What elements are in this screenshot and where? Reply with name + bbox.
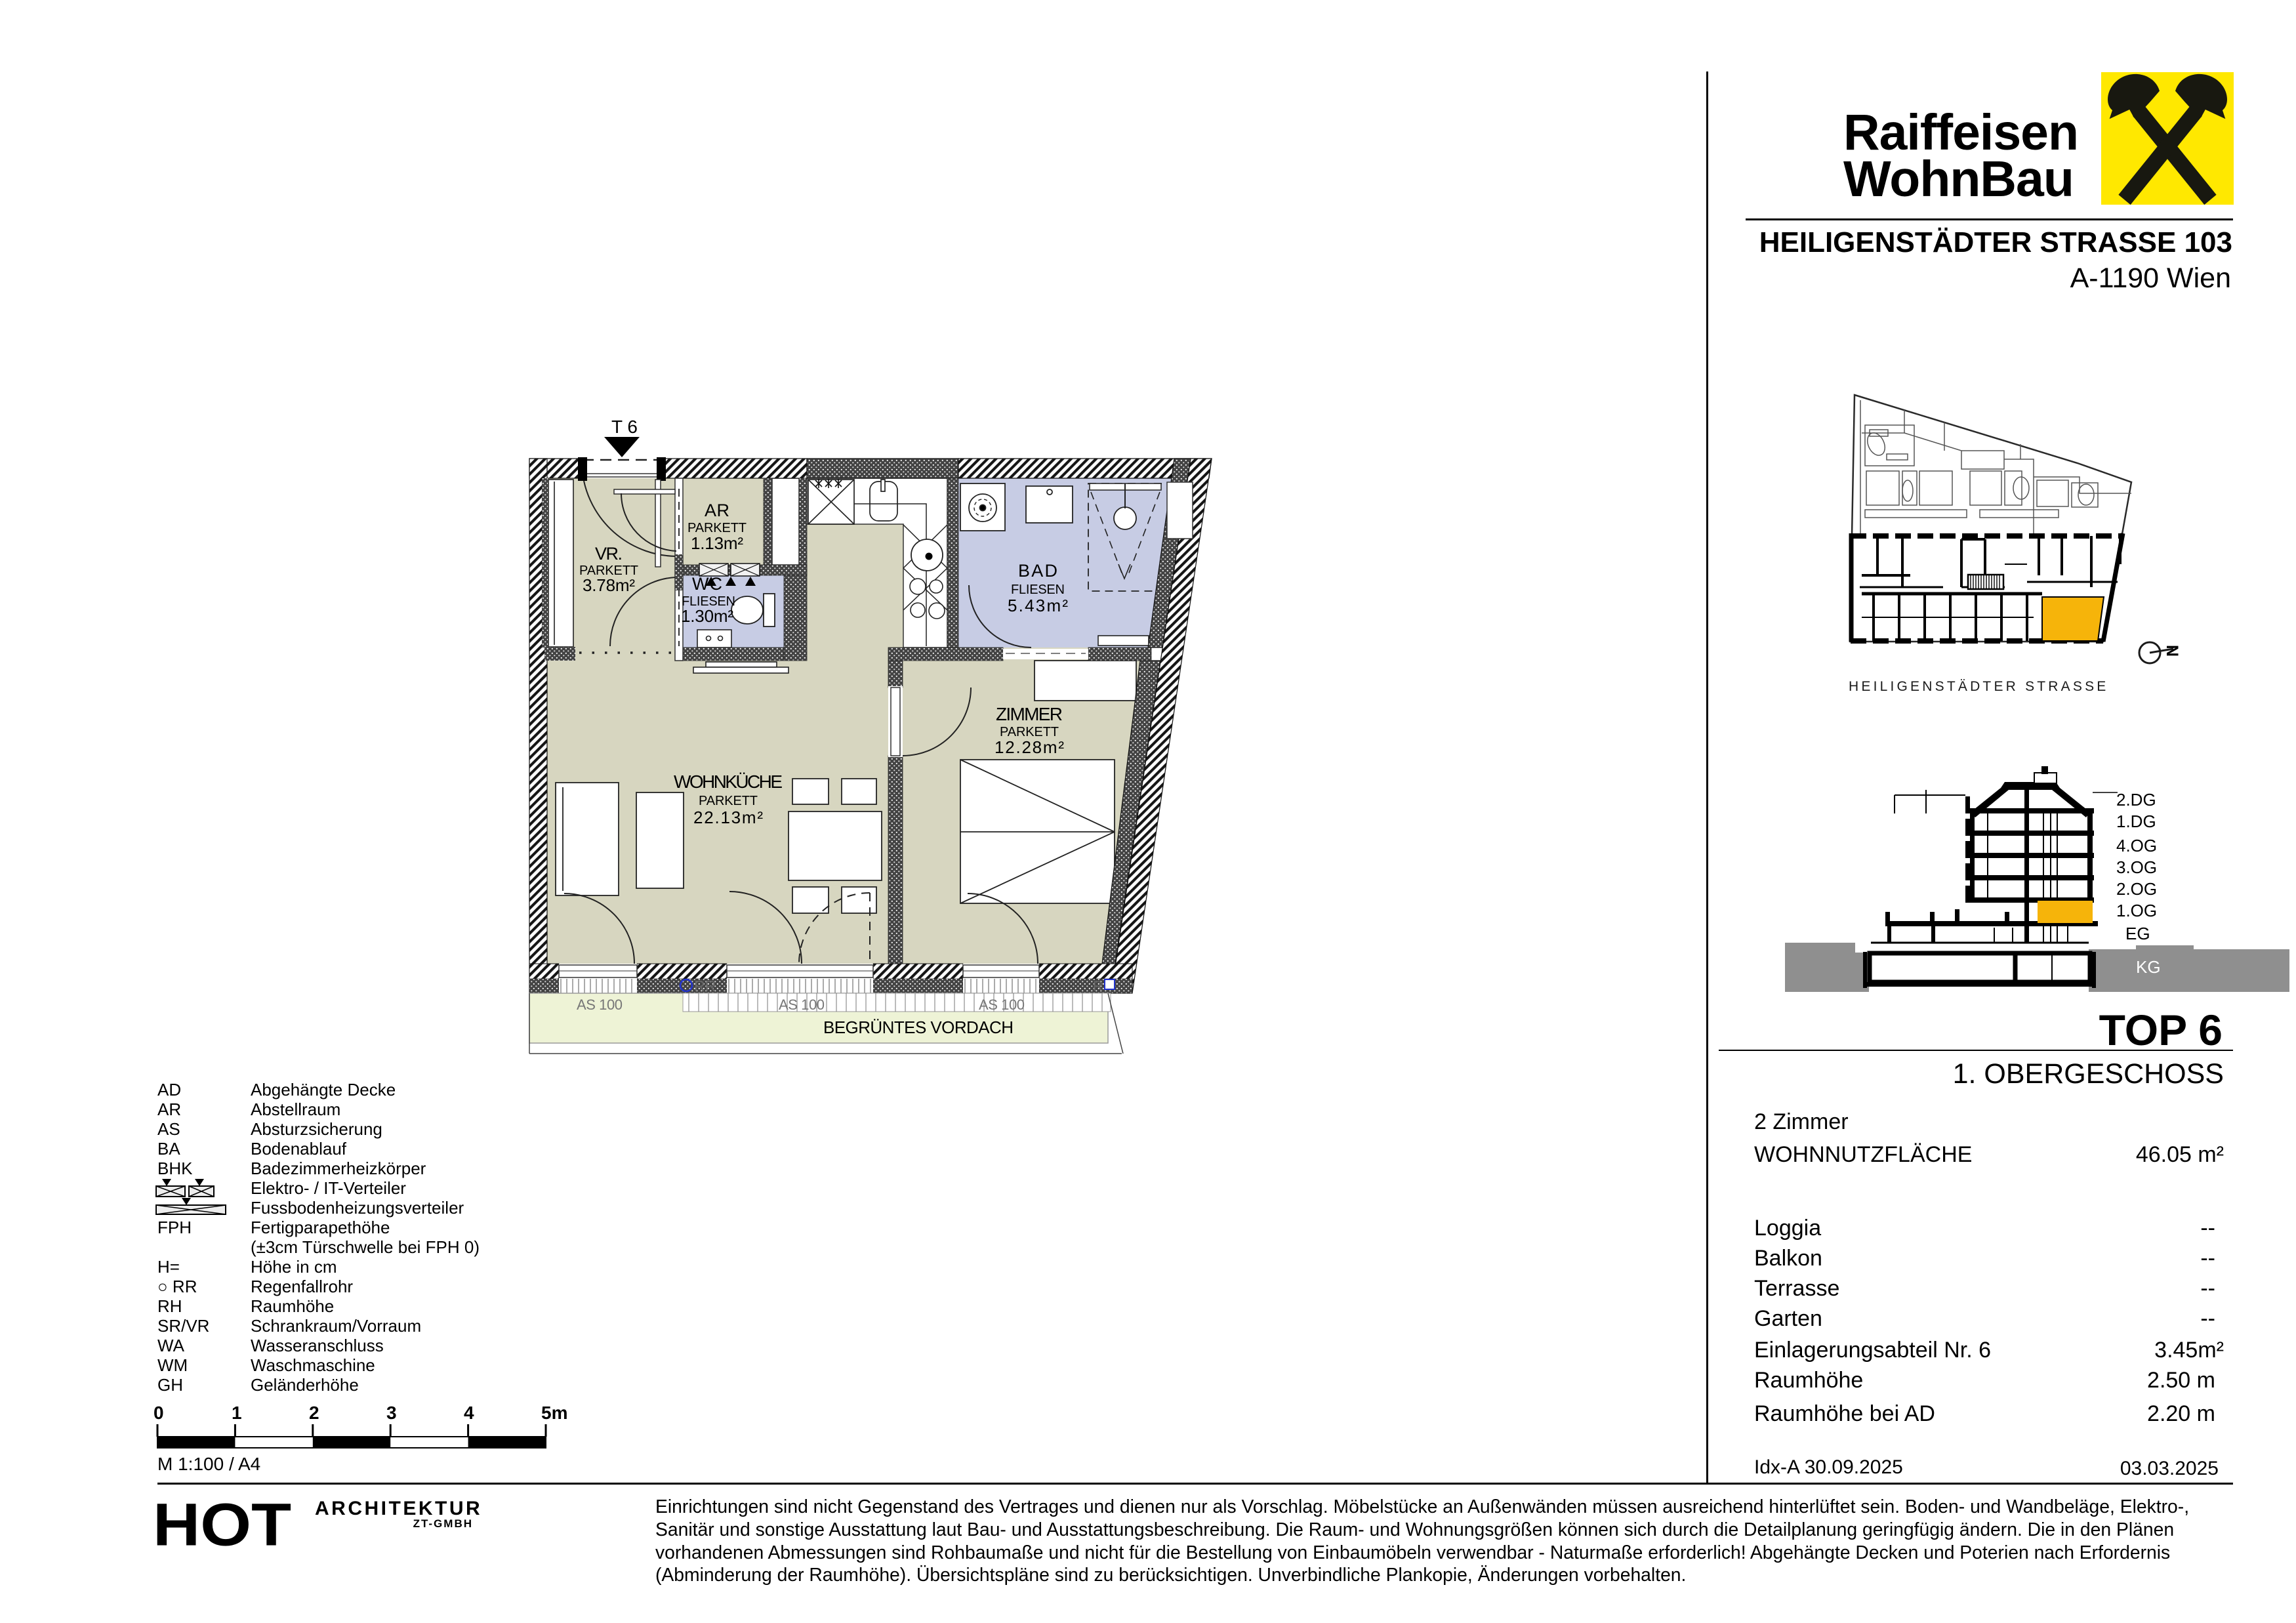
svg-text:0: 0 (154, 1403, 164, 1423)
svg-text:2: 2 (309, 1403, 319, 1423)
svg-text:1.OG: 1.OG (2116, 901, 2157, 920)
svg-text:12.28m²: 12.28m² (994, 737, 1064, 757)
svg-text:1.30m²: 1.30m² (681, 606, 733, 626)
svg-text:AS 100: AS 100 (979, 996, 1025, 1013)
svg-text:5.43m²: 5.43m² (1008, 596, 1068, 615)
svg-text:22.13m²: 22.13m² (693, 808, 763, 827)
svg-text:PARKETT: PARKETT (699, 794, 758, 808)
svg-text:3: 3 (386, 1403, 397, 1423)
svg-text:N: N (2163, 645, 2181, 657)
svg-text:WC: WC (692, 574, 722, 594)
svg-text:AR: AR (705, 501, 729, 520)
svg-text:ZIMMER: ZIMMER (996, 704, 1063, 724)
svg-text:4.OG: 4.OG (2116, 836, 2157, 855)
svg-text:3.OG: 3.OG (2116, 857, 2157, 877)
svg-text:RR: RR (694, 977, 716, 995)
svg-text:1.DG: 1.DG (2116, 811, 2156, 831)
svg-text:AS 100: AS 100 (779, 996, 825, 1013)
svg-text:2.DG: 2.DG (2116, 790, 2156, 810)
svg-text:R: R (1093, 979, 1103, 994)
svg-text:HEILIGENSTÄDTER STRASSE: HEILIGENSTÄDTER STRASSE (1849, 679, 2109, 694)
svg-text:KG: KG (2136, 957, 2161, 977)
svg-text:EG: EG (2125, 924, 2150, 943)
svg-text:1: 1 (232, 1403, 242, 1423)
svg-text:AS 100: AS 100 (577, 996, 623, 1013)
svg-text:3.78m²: 3.78m² (583, 575, 635, 595)
svg-text:WOHNKÜCHE: WOHNKÜCHE (674, 771, 783, 792)
svg-text:T 6: T 6 (611, 417, 638, 437)
svg-text:FLIESEN: FLIESEN (1011, 583, 1065, 597)
svg-text:5m: 5m (541, 1403, 567, 1423)
svg-text:VR.: VR. (595, 544, 623, 564)
svg-text:4: 4 (464, 1403, 474, 1423)
svg-text:2.OG: 2.OG (2116, 879, 2157, 899)
svg-text:BEGRÜNTES VORDACH: BEGRÜNTES VORDACH (823, 1017, 1014, 1037)
svg-text:1.13m²: 1.13m² (691, 533, 743, 553)
svg-text:BAD: BAD (1018, 561, 1057, 581)
